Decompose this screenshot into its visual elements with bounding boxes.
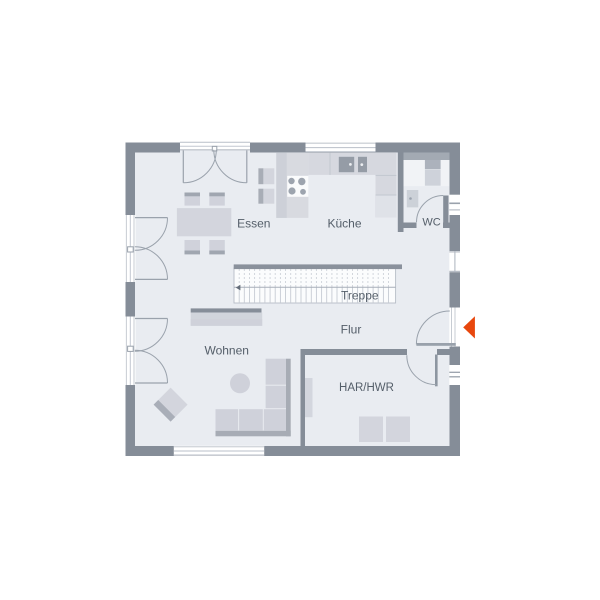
- svg-text:Flur: Flur: [341, 323, 362, 337]
- svg-text:Wohnen: Wohnen: [204, 344, 248, 358]
- svg-text:HAR/HWR: HAR/HWR: [339, 382, 394, 394]
- svg-text:Küche: Küche: [327, 217, 361, 231]
- svg-text:WC: WC: [422, 217, 440, 229]
- svg-text:Treppe: Treppe: [341, 289, 379, 303]
- svg-text:Essen: Essen: [237, 217, 270, 231]
